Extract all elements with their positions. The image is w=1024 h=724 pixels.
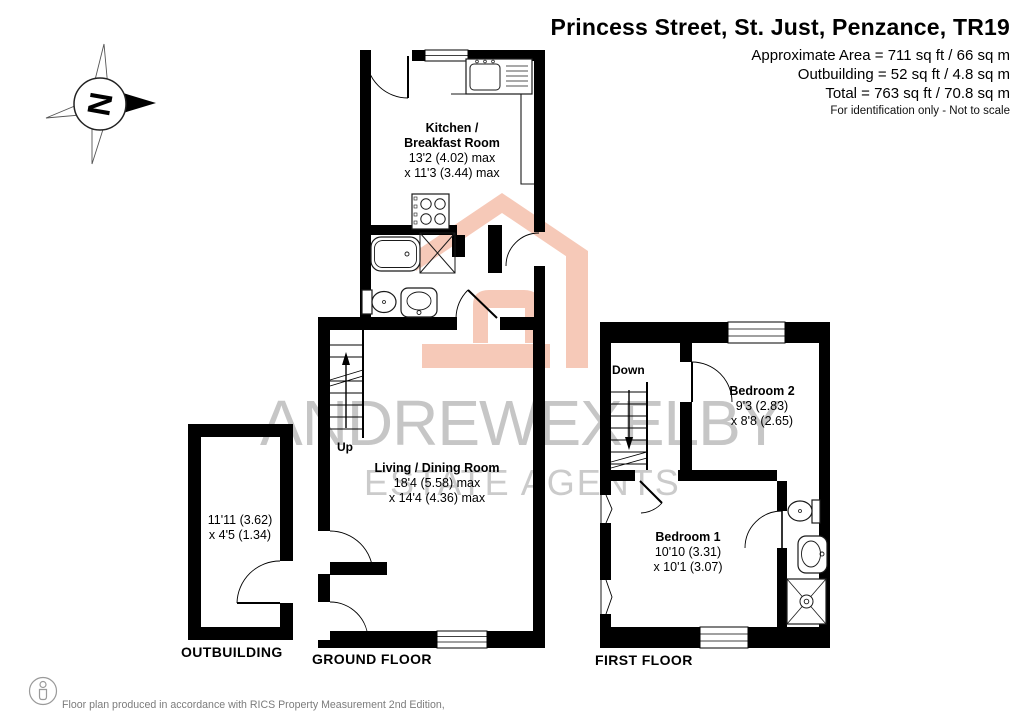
kitchen-sink-icon: [466, 59, 532, 94]
bathtub-icon: [371, 237, 420, 271]
stairs-down: [611, 382, 647, 470]
ground-floor-caption: GROUND FLOOR: [312, 651, 432, 667]
footer-credits: Floor plan produced in accordance with R…: [62, 672, 541, 724]
door-symbol-outbuilding: [237, 561, 280, 603]
outbuilding-caption: OUTBUILDING: [181, 644, 283, 660]
cupboard-icon: [420, 233, 455, 273]
kitchen-label: Kitchen / Breakfast Room 13'2 (4.02) max…: [404, 121, 500, 181]
floorplan-page: Princess Street, St. Just, Penzance, TR1…: [0, 0, 1024, 724]
toilet-icon-ground: [362, 290, 396, 314]
stairs-up: [330, 330, 363, 438]
stairs-down-label: Down: [612, 363, 645, 377]
living-room-label: Living / Dining Room 18'4 (5.58) max x 1…: [375, 461, 500, 506]
first-floor-caption: FIRST FLOOR: [595, 652, 693, 668]
footer-line: Floor plan produced in accordance with R…: [62, 699, 541, 713]
basin-icon-first: [798, 536, 827, 573]
hob-icon: [412, 194, 449, 229]
outbuilding-dims-label: 11'11 (3.62) x 4'5 (1.34): [208, 513, 272, 543]
floor-plan-svg: N: [0, 0, 1024, 724]
compass-north-icon: N: [46, 44, 156, 164]
basin-icon-ground: [401, 288, 437, 317]
bedroom2-label: Bedroom 2 9'3 (2.83) x 8'8 (2.65): [729, 384, 794, 429]
stairs-up-label: Up: [337, 440, 353, 454]
shower-icon: [787, 579, 826, 624]
bedroom1-label: Bedroom 1 10'10 (3.31) x 10'1 (3.07): [653, 530, 722, 575]
toilet-icon-first: [788, 500, 820, 523]
